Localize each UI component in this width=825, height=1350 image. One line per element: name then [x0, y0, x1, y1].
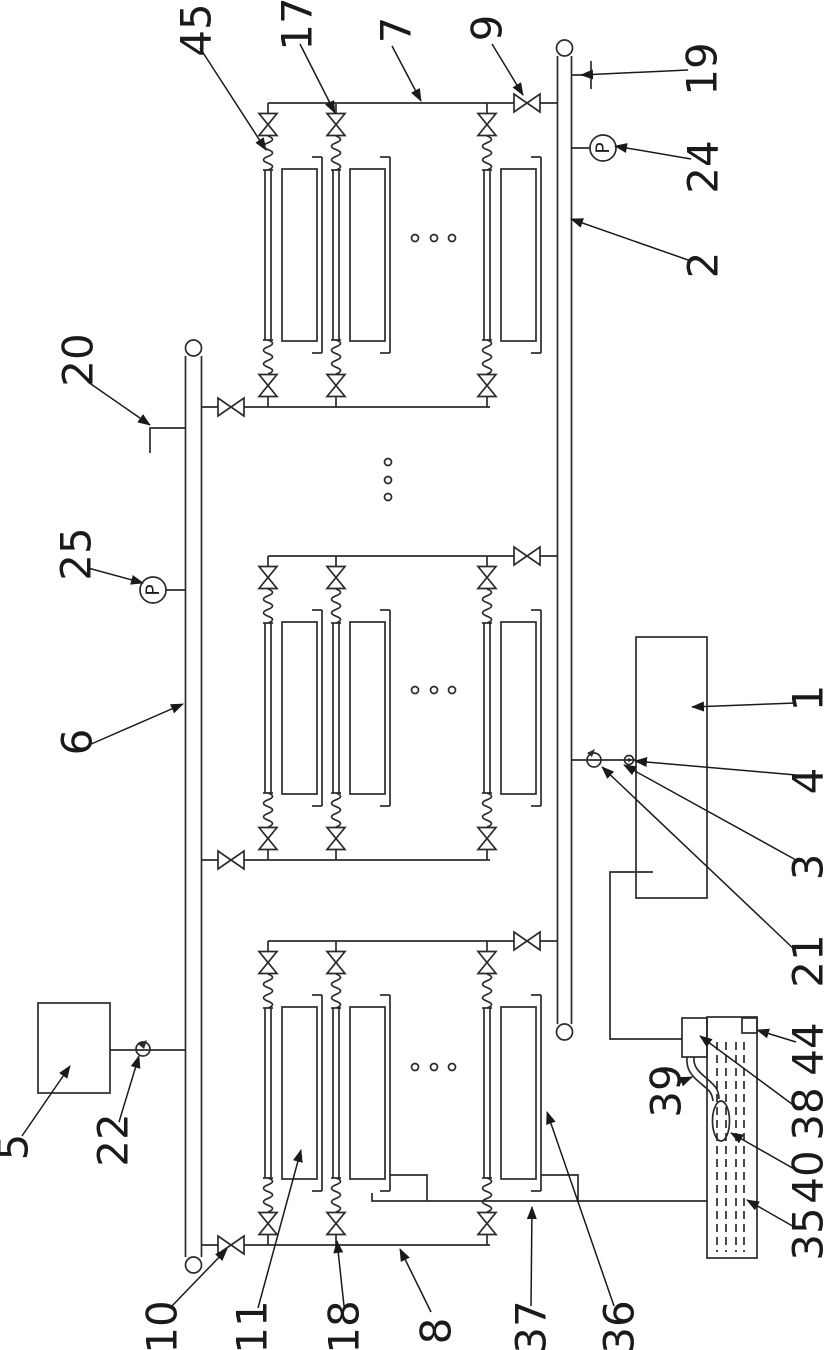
- leader-line: [531, 1207, 532, 1306]
- ellipsis-dot: [431, 687, 438, 694]
- valve-icon: [327, 839, 345, 850]
- branch-3: [478, 103, 541, 407]
- valve-icon: [218, 398, 231, 416]
- fitting-a-on-box1-line: [587, 749, 601, 767]
- valve-icon: [527, 547, 540, 565]
- ref-label-7: 7: [372, 17, 422, 101]
- ref-label-17: 17: [273, 0, 336, 113]
- ellipsis-dot: [412, 687, 419, 694]
- circulation-line: [610, 872, 682, 1039]
- valve-icon: [478, 839, 496, 850]
- box1-outline: [636, 637, 707, 898]
- valve-icon: [231, 851, 244, 869]
- label-text: 1: [784, 685, 825, 712]
- valve-icon: [259, 125, 277, 136]
- valve-icon: [327, 952, 345, 963]
- filter-plate: [282, 169, 317, 341]
- flex-hose-icon: [483, 340, 492, 374]
- label-text: 25: [52, 527, 101, 580]
- label-text: 8: [412, 1318, 461, 1345]
- label-text: 9: [463, 15, 512, 42]
- flex-hose-icon: [332, 793, 341, 827]
- filter-module-3: [202, 932, 558, 1254]
- valve-icon: [327, 567, 345, 578]
- valve-icon: [514, 932, 527, 950]
- valve-icon: [327, 963, 345, 974]
- collection-pipe-2: [557, 40, 573, 1040]
- valve-icon: [527, 932, 540, 950]
- branch-3: [478, 941, 541, 1245]
- valve-icon: [259, 114, 277, 125]
- label-text: 35: [784, 1207, 825, 1260]
- leader-line: [400, 1249, 431, 1312]
- filter-plate: [350, 622, 385, 794]
- flex-hose-icon: [332, 1178, 341, 1212]
- valve-icon: [231, 1236, 244, 1254]
- drain-step: [541, 1175, 578, 1201]
- branch-2: [327, 941, 390, 1245]
- flex-hose-icon: [483, 793, 492, 827]
- pipe6-bottom-cap: [186, 1257, 202, 1273]
- label-text: 44: [784, 1022, 825, 1075]
- valve-icon: [327, 1213, 345, 1224]
- branch-1: [259, 941, 322, 1245]
- valve-icon: [259, 386, 277, 397]
- valve-icon: [478, 1224, 496, 1235]
- valve-icon: [327, 114, 345, 125]
- ref-label-24: 24: [615, 140, 728, 193]
- branch-1: [259, 556, 322, 860]
- leader-line: [547, 1112, 614, 1306]
- ref-label-35: 35: [747, 1200, 825, 1261]
- pipe2-top-cap: [557, 40, 573, 56]
- pump-body-icon: [713, 1101, 730, 1141]
- ellipsis-dot: [385, 494, 392, 501]
- schematic-canvas: PP 4517791924220256522101118837363540384…: [0, 0, 825, 1350]
- filter-plate: [350, 1007, 385, 1179]
- valve-icon: [327, 828, 345, 839]
- ellipsis-dot: [385, 459, 392, 466]
- tank-35: [707, 1017, 757, 1258]
- flex-hose-icon: [264, 974, 273, 1008]
- feed-pipe-6: [186, 340, 202, 1273]
- valve-icon: [478, 567, 496, 578]
- ref-label-22: 22: [89, 1056, 140, 1167]
- leader-line: [635, 761, 796, 775]
- valve-icon: [478, 114, 496, 125]
- circulation-pipe-21: [610, 872, 682, 1039]
- hose-line: [687, 1057, 713, 1101]
- module-ellipsis-dots: [385, 459, 392, 501]
- branch-3: [478, 556, 541, 860]
- ref-label-25: 25: [52, 527, 144, 583]
- flex-hose-icon: [332, 340, 341, 374]
- label-text: 4: [784, 768, 825, 795]
- valve-icon: [327, 578, 345, 589]
- label-text: 22: [89, 1113, 138, 1166]
- valve-icon: [478, 828, 496, 839]
- drain-line: [372, 1175, 707, 1201]
- valve-icon: [259, 567, 277, 578]
- ellipsis-dot: [449, 687, 456, 694]
- valve-icon: [478, 578, 496, 589]
- filter-plate: [282, 622, 317, 794]
- valve-icon: [259, 1213, 277, 1224]
- label-text: 7: [372, 17, 421, 44]
- ellipsis-dot: [431, 1064, 438, 1071]
- box-1: [572, 637, 708, 898]
- label-text: 24: [679, 140, 728, 193]
- filter-plate: [501, 169, 536, 341]
- valve-icon: [478, 952, 496, 963]
- label-text: 39: [642, 1064, 691, 1117]
- flex-hose-icon: [332, 589, 341, 623]
- overflow-port-44: [742, 1018, 757, 1033]
- valve-icon: [259, 839, 277, 850]
- pipe6-top-cap: [186, 340, 202, 356]
- pressure-gauge-24: P: [572, 135, 617, 161]
- label-text: 19: [678, 42, 727, 95]
- branch-1: [259, 103, 322, 407]
- submersible-pump-40: [713, 1101, 730, 1141]
- flex-hose-icon: [264, 589, 273, 623]
- label-text: 6: [53, 729, 102, 756]
- ref-label-4: 4: [635, 761, 825, 794]
- label-text: 21: [784, 934, 825, 987]
- ref-label-36: 36: [547, 1112, 644, 1350]
- valve-icon: [259, 828, 277, 839]
- capped-port-pipe6: [150, 428, 186, 453]
- flex-hose-icon: [264, 340, 273, 374]
- ref-label-9: 9: [463, 15, 524, 95]
- ellipsis-dot: [431, 235, 438, 242]
- filter-module-1: [202, 94, 558, 416]
- label-text: 38: [784, 1087, 825, 1140]
- ref-label-18: 18: [320, 1241, 369, 1350]
- drain-step: [390, 1175, 427, 1201]
- ref-label-45: 45: [172, 3, 267, 150]
- valve-icon: [478, 1213, 496, 1224]
- flex-hose-icon: [332, 974, 341, 1008]
- valve-icon: [478, 386, 496, 397]
- flex-hose-icon: [483, 974, 492, 1008]
- label-text: 3: [784, 854, 825, 881]
- valve-icon: [259, 952, 277, 963]
- leader-line: [89, 704, 183, 745]
- ellipsis-dot: [449, 1064, 456, 1071]
- label-text: 40: [784, 1150, 825, 1203]
- ref-label-8: 8: [400, 1249, 461, 1344]
- leader-line: [22, 1066, 70, 1136]
- valve-icon: [259, 578, 277, 589]
- drain-main: [372, 1193, 707, 1201]
- label-text: 37: [507, 1300, 556, 1350]
- ref-label-37: 37: [507, 1207, 556, 1350]
- valve-icon: [327, 375, 345, 386]
- gauge-letter: P: [142, 584, 164, 595]
- valve-icon: [478, 963, 496, 974]
- valve-icon: [259, 963, 277, 974]
- ref-label-2: 2: [571, 219, 728, 278]
- ref-label-5: 5: [0, 1066, 70, 1160]
- flex-hose-icon: [483, 136, 492, 170]
- valve-icon: [231, 398, 244, 416]
- valve-icon: [478, 375, 496, 386]
- valve-icon: [327, 1224, 345, 1235]
- ref-label-40: 40: [731, 1133, 825, 1204]
- filter-plate: [350, 169, 385, 341]
- flex-hose-icon: [264, 793, 273, 827]
- valve-icon: [478, 125, 496, 136]
- valve-icon: [259, 375, 277, 386]
- flex-hose-icon: [332, 136, 341, 170]
- valve-icon: [327, 125, 345, 136]
- pressure-gauge-25: P: [140, 577, 186, 603]
- ellipsis-dot: [449, 235, 456, 242]
- ref-label-1: 1: [692, 685, 825, 712]
- valve-icon: [514, 547, 527, 565]
- flex-hose-icon: [264, 1178, 273, 1212]
- leader-line: [88, 382, 150, 425]
- valve-icon: [514, 94, 527, 112]
- leader-line: [392, 46, 421, 101]
- port20-stub: [150, 428, 186, 453]
- label-text: 5: [0, 1134, 38, 1161]
- leader-line: [119, 1056, 139, 1122]
- schematic-page: PP 4517791924220256522101118837363540384…: [0, 0, 825, 1350]
- ref-label-39: 39: [642, 1064, 693, 1117]
- label-text: 10: [138, 1300, 187, 1350]
- pipe2-bottom-cap: [557, 1024, 573, 1040]
- fitting-b-dot: [627, 758, 630, 761]
- flex-hose-icon: [483, 1178, 492, 1212]
- label-text: 36: [595, 1300, 644, 1350]
- valve-icon: [259, 1224, 277, 1235]
- leader-line: [200, 48, 266, 150]
- flex-hose-icon: [264, 136, 273, 170]
- ref-label-6: 6: [53, 704, 184, 755]
- filter-module-2: [202, 547, 558, 869]
- leader-line: [581, 70, 688, 75]
- flex-hose-icon: [483, 589, 492, 623]
- label-text: 45: [172, 3, 221, 56]
- leader-line: [602, 767, 796, 951]
- branch-2: [327, 556, 390, 860]
- valve-icon: [327, 386, 345, 397]
- ref-label-20: 20: [54, 333, 151, 425]
- ref-label-44: 44: [757, 1022, 825, 1075]
- leader-line: [700, 1036, 796, 1107]
- tank-outline: [707, 1017, 757, 1258]
- label-text: 2: [679, 252, 728, 279]
- filter-plate: [501, 1007, 536, 1179]
- ellipsis-dot: [412, 1064, 419, 1071]
- gauge-letter: P: [592, 142, 614, 153]
- label-text: 20: [54, 333, 103, 386]
- filter-plate: [501, 622, 536, 794]
- reference-labels-layer: 4517791924220256522101118837363540384439…: [0, 0, 825, 1350]
- hose-39: [687, 1057, 719, 1101]
- leader-line: [492, 44, 523, 95]
- valve-icon: [527, 94, 540, 112]
- leader-line: [337, 1241, 344, 1306]
- label-text: 11: [228, 1300, 277, 1350]
- valve-22: [136, 1040, 150, 1056]
- label-text: 17: [273, 0, 322, 51]
- ellipsis-dot: [412, 235, 419, 242]
- leader-line: [571, 219, 691, 261]
- branch-2: [327, 103, 390, 407]
- ref-label-19: 19: [581, 42, 727, 95]
- ellipsis-dot: [385, 477, 392, 484]
- label-text: 18: [320, 1300, 369, 1350]
- box5-outline: [38, 1003, 110, 1093]
- ref-label-10: 10: [138, 1249, 228, 1350]
- valve-icon: [218, 851, 231, 869]
